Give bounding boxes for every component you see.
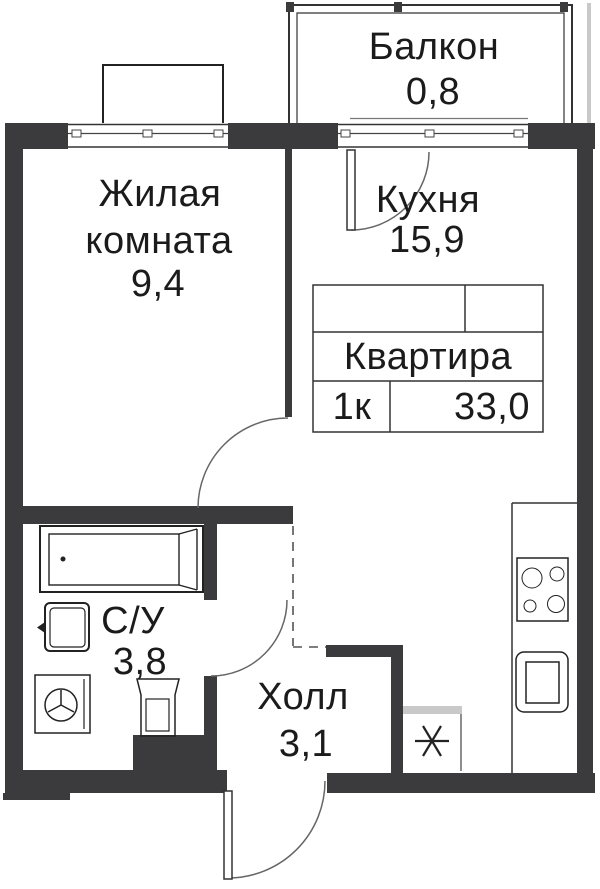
stove (517, 558, 568, 621)
summary-title: Квартира (344, 338, 512, 376)
hall-area: 3,1 (279, 725, 333, 763)
kitchen-window (338, 123, 528, 149)
kitchen-label: Кухня (376, 181, 480, 219)
ventilation-asterisk-icon (415, 726, 449, 756)
wash-basin (37, 603, 89, 651)
window-bay-outline (103, 65, 223, 125)
ventilation-shaft (403, 706, 462, 771)
living-room-area: 9,4 (131, 265, 185, 303)
entry-door (224, 781, 325, 879)
summary-rooms-count: 1к (333, 388, 372, 426)
wall-corner-step (3, 793, 70, 800)
balcony-area: 0,8 (406, 73, 460, 111)
hall-label: Холл (257, 678, 349, 716)
bathroom-door (211, 600, 287, 676)
toilet (137, 679, 179, 736)
living-room-window (68, 123, 228, 149)
bathroom-area: 3,8 (113, 643, 167, 681)
living-room-label-1: Жилая (99, 175, 222, 213)
kitchen-counter (512, 503, 577, 773)
living-room-door (198, 418, 288, 508)
washing-machine (35, 675, 90, 733)
zone-boundary-dashed (293, 526, 326, 647)
living-room-label-2: комната (85, 222, 232, 260)
bathtub (40, 526, 203, 592)
kitchen-area: 15,9 (389, 221, 465, 259)
summary-total-area: 33,0 (454, 388, 530, 426)
kitchen-sink (516, 652, 568, 712)
balcony-label: Балкон (369, 28, 499, 66)
bathroom-label: С/У (101, 602, 165, 640)
floor-plan: Балкон 0,8 Жилая комната 9,4 Кухня 15,9 … (0, 0, 600, 889)
